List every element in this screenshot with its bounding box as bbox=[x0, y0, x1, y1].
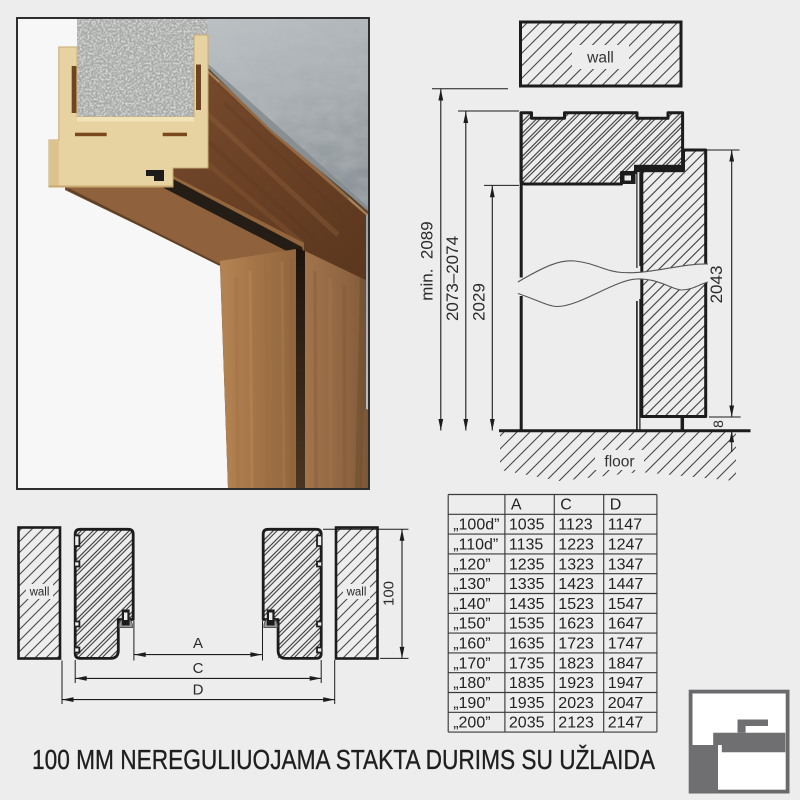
svg-text:1635: 1635 bbox=[509, 636, 545, 653]
svg-text:„200”: „200” bbox=[453, 715, 490, 732]
svg-text:1035: 1035 bbox=[509, 517, 545, 534]
svg-text:1547: 1547 bbox=[608, 596, 644, 613]
svg-text:1347: 1347 bbox=[608, 556, 644, 573]
svg-text:1335: 1335 bbox=[509, 576, 545, 593]
svg-text:1647: 1647 bbox=[608, 616, 644, 633]
svg-text:1835: 1835 bbox=[509, 675, 545, 692]
svg-text:2123: 2123 bbox=[558, 715, 594, 732]
svg-text:1735: 1735 bbox=[509, 655, 545, 672]
svg-text:2023: 2023 bbox=[558, 695, 594, 712]
svg-text:„140”: „140” bbox=[453, 596, 490, 613]
svg-text:1935: 1935 bbox=[509, 695, 545, 712]
svg-text:1147: 1147 bbox=[608, 517, 643, 534]
svg-text:„110d”: „110d” bbox=[453, 537, 498, 554]
svg-text:1523: 1523 bbox=[558, 596, 594, 613]
svg-text:1823: 1823 bbox=[558, 655, 594, 672]
svg-text:1123: 1123 bbox=[558, 517, 593, 534]
svg-text:2147: 2147 bbox=[608, 715, 644, 732]
svg-text:1435: 1435 bbox=[509, 596, 545, 613]
svg-text:„130”: „130” bbox=[453, 576, 490, 593]
svg-text:1447: 1447 bbox=[608, 576, 644, 593]
svg-text:„190”: „190” bbox=[453, 695, 490, 712]
svg-text:1923: 1923 bbox=[558, 675, 594, 692]
svg-text:D: D bbox=[610, 497, 622, 514]
svg-text:„120”: „120” bbox=[453, 556, 490, 573]
svg-text:1747: 1747 bbox=[608, 636, 644, 653]
svg-text:1623: 1623 bbox=[558, 616, 594, 633]
svg-text:2047: 2047 bbox=[608, 695, 644, 712]
svg-text:1235: 1235 bbox=[509, 556, 545, 573]
svg-text:1723: 1723 bbox=[558, 636, 594, 653]
svg-text:1423: 1423 bbox=[558, 576, 594, 593]
svg-text:1247: 1247 bbox=[608, 537, 644, 554]
svg-text:1847: 1847 bbox=[608, 655, 644, 672]
svg-text:1223: 1223 bbox=[558, 537, 594, 554]
svg-text:„180”: „180” bbox=[453, 675, 490, 692]
svg-text:1323: 1323 bbox=[558, 556, 594, 573]
svg-text:A: A bbox=[511, 497, 522, 514]
svg-text:C: C bbox=[560, 497, 572, 514]
svg-text:1947: 1947 bbox=[608, 675, 644, 692]
svg-text:„100d”: „100d” bbox=[453, 517, 499, 534]
svg-text:„150”: „150” bbox=[453, 616, 490, 633]
svg-text:1535: 1535 bbox=[509, 616, 545, 633]
svg-text:1135: 1135 bbox=[509, 537, 544, 554]
svg-text:„170”: „170” bbox=[453, 655, 490, 672]
svg-text:2035: 2035 bbox=[509, 715, 545, 732]
svg-text:„160”: „160” bbox=[453, 636, 490, 653]
